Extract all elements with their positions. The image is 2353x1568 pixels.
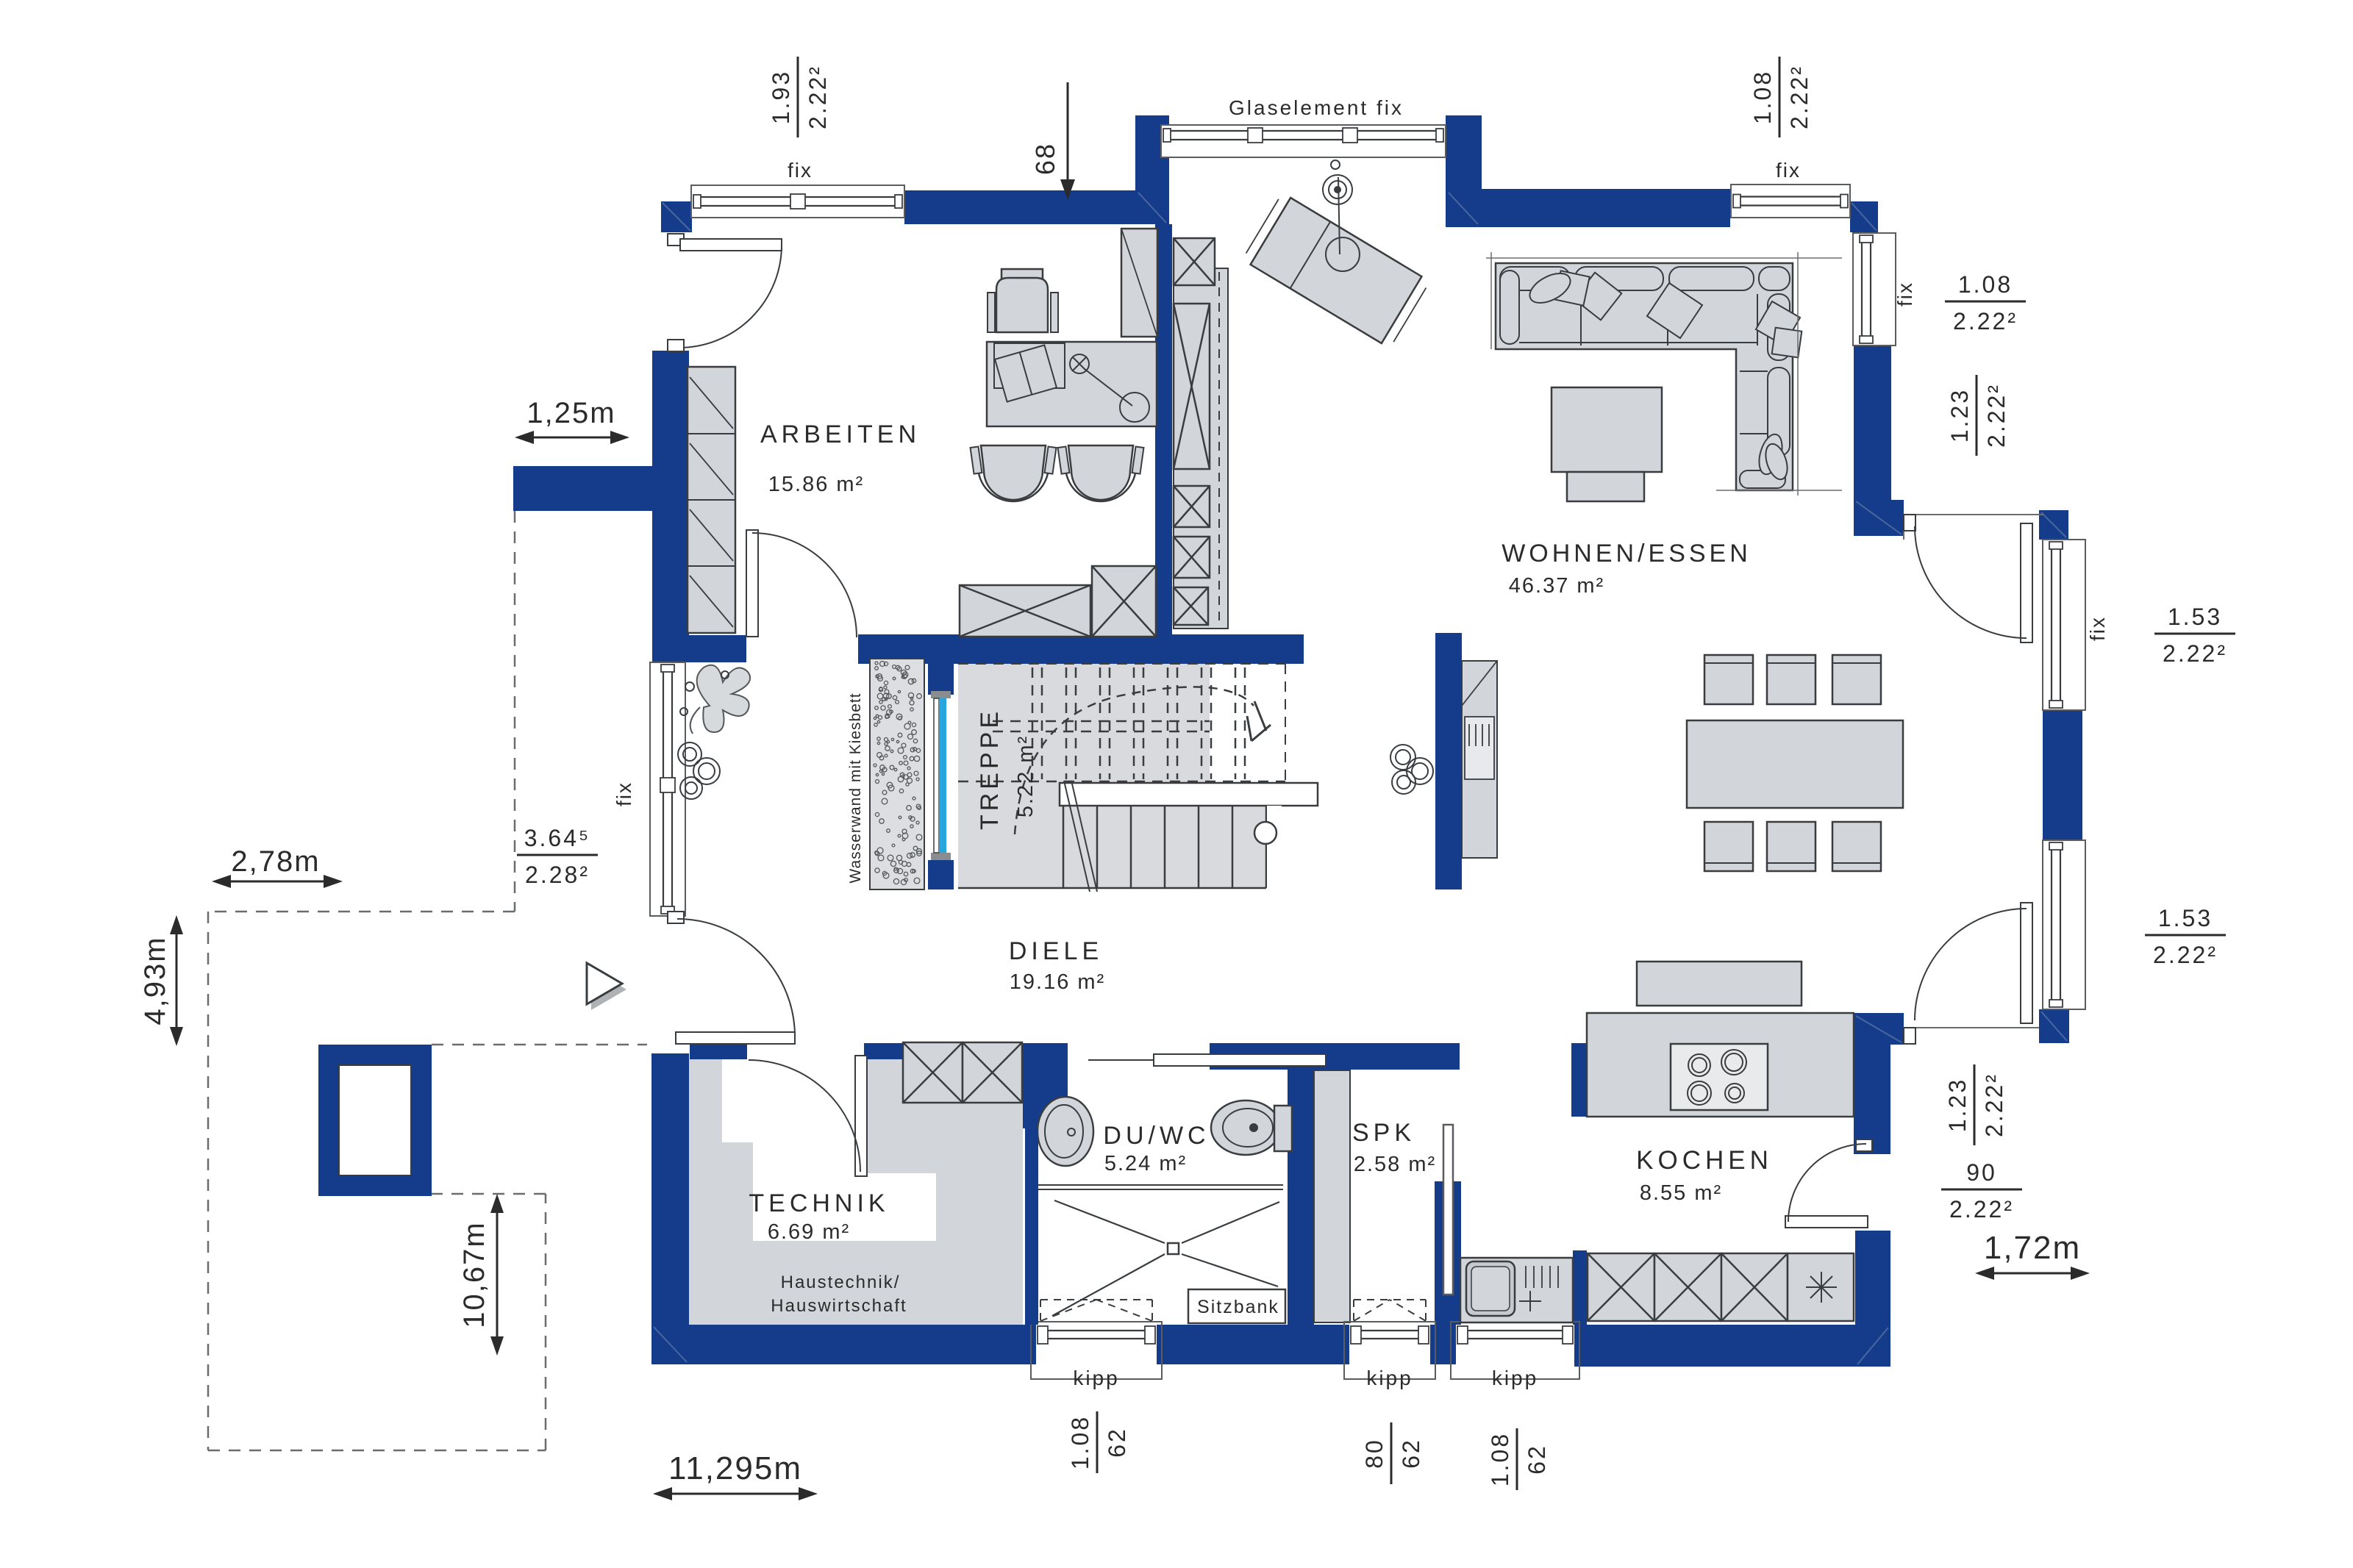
- svg-text:DU/WC: DU/WC: [1103, 1122, 1210, 1150]
- svg-text:Hauswirtschaft: Hauswirtschaft: [771, 1296, 907, 1316]
- svg-text:62: 62: [1104, 1427, 1130, 1458]
- svg-text:68: 68: [1030, 143, 1060, 175]
- svg-text:1.53: 1.53: [2168, 604, 2222, 630]
- svg-text:KOCHEN: KOCHEN: [1636, 1146, 1773, 1175]
- svg-text:fix: fix: [1776, 159, 1801, 182]
- svg-text:Glaselement fix: Glaselement fix: [1229, 96, 1404, 119]
- svg-text:2.22²: 2.22²: [1949, 1196, 2014, 1222]
- svg-text:1.23: 1.23: [1946, 388, 1973, 443]
- svg-text:4,93m: 4,93m: [139, 936, 171, 1025]
- svg-text:SPK: SPK: [1352, 1119, 1415, 1147]
- svg-text:19.16 m²: 19.16 m²: [1010, 970, 1105, 994]
- svg-text:15.86 m²: 15.86 m²: [768, 473, 864, 496]
- svg-text:3.64⁵: 3.64⁵: [524, 825, 591, 851]
- svg-text:2.22²: 2.22²: [804, 65, 831, 129]
- svg-text:5.24 m²: 5.24 m²: [1104, 1152, 1187, 1175]
- svg-text:1.93: 1.93: [768, 70, 794, 124]
- svg-text:1.08: 1.08: [1749, 70, 1776, 124]
- svg-text:10,67m: 10,67m: [458, 1221, 490, 1328]
- svg-text:46.37 m²: 46.37 m²: [1509, 574, 1604, 598]
- svg-text:11,295m: 11,295m: [668, 1450, 802, 1486]
- svg-text:90: 90: [1966, 1159, 1997, 1186]
- svg-text:Sitzbank: Sitzbank: [1197, 1297, 1279, 1317]
- svg-text:WOHNEN/ESSEN: WOHNEN/ESSEN: [1502, 540, 1752, 568]
- svg-text:fix: fix: [613, 781, 635, 806]
- svg-text:kipp: kipp: [1366, 1367, 1413, 1389]
- svg-text:2.58 m²: 2.58 m²: [1354, 1153, 1436, 1176]
- svg-text:80: 80: [1361, 1438, 1388, 1469]
- svg-text:1,72m: 1,72m: [1984, 1230, 2081, 1266]
- svg-text:8.55 m²: 8.55 m²: [1640, 1181, 1722, 1205]
- svg-text:6.69 m²: 6.69 m²: [768, 1220, 850, 1244]
- svg-text:2.22²: 2.22²: [1786, 65, 1813, 129]
- svg-text:fix: fix: [1893, 282, 1916, 307]
- svg-text:2.22²: 2.22²: [1953, 308, 2018, 334]
- svg-text:TREPPE: TREPPE: [976, 708, 1004, 830]
- svg-text:Haustechnik/: Haustechnik/: [781, 1272, 901, 1292]
- svg-text:2,78m: 2,78m: [231, 845, 320, 878]
- svg-text:2.22²: 2.22²: [1981, 1073, 2007, 1137]
- svg-text:62: 62: [1398, 1438, 1424, 1469]
- svg-text:1,25m: 1,25m: [526, 397, 615, 429]
- svg-text:ARBEITEN: ARBEITEN: [760, 420, 921, 448]
- svg-text:2.28²: 2.28²: [525, 862, 590, 888]
- svg-text:62: 62: [1524, 1444, 1550, 1475]
- svg-text:fix: fix: [2086, 616, 2109, 641]
- svg-text:Wasserwand mit Kiesbett: Wasserwand mit Kiesbett: [847, 692, 864, 883]
- svg-text:1.08: 1.08: [1487, 1432, 1513, 1486]
- svg-text:2.22²: 2.22²: [1983, 383, 2010, 448]
- svg-text:5.22 m²: 5.22 m²: [1014, 735, 1038, 817]
- svg-text:2.22²: 2.22²: [2153, 942, 2218, 968]
- svg-text:1.23: 1.23: [1944, 1078, 1971, 1132]
- svg-text:1.53: 1.53: [2158, 905, 2213, 931]
- svg-text:1.08: 1.08: [1958, 271, 2013, 298]
- svg-text:kipp: kipp: [1073, 1367, 1119, 1389]
- svg-text:DIELE: DIELE: [1009, 937, 1103, 965]
- svg-text:fix: fix: [788, 159, 813, 182]
- svg-text:TECHNIK: TECHNIK: [749, 1189, 889, 1217]
- svg-text:2.22²: 2.22²: [2163, 640, 2227, 667]
- svg-text:1.08: 1.08: [1067, 1415, 1093, 1469]
- svg-text:kipp: kipp: [1492, 1367, 1538, 1389]
